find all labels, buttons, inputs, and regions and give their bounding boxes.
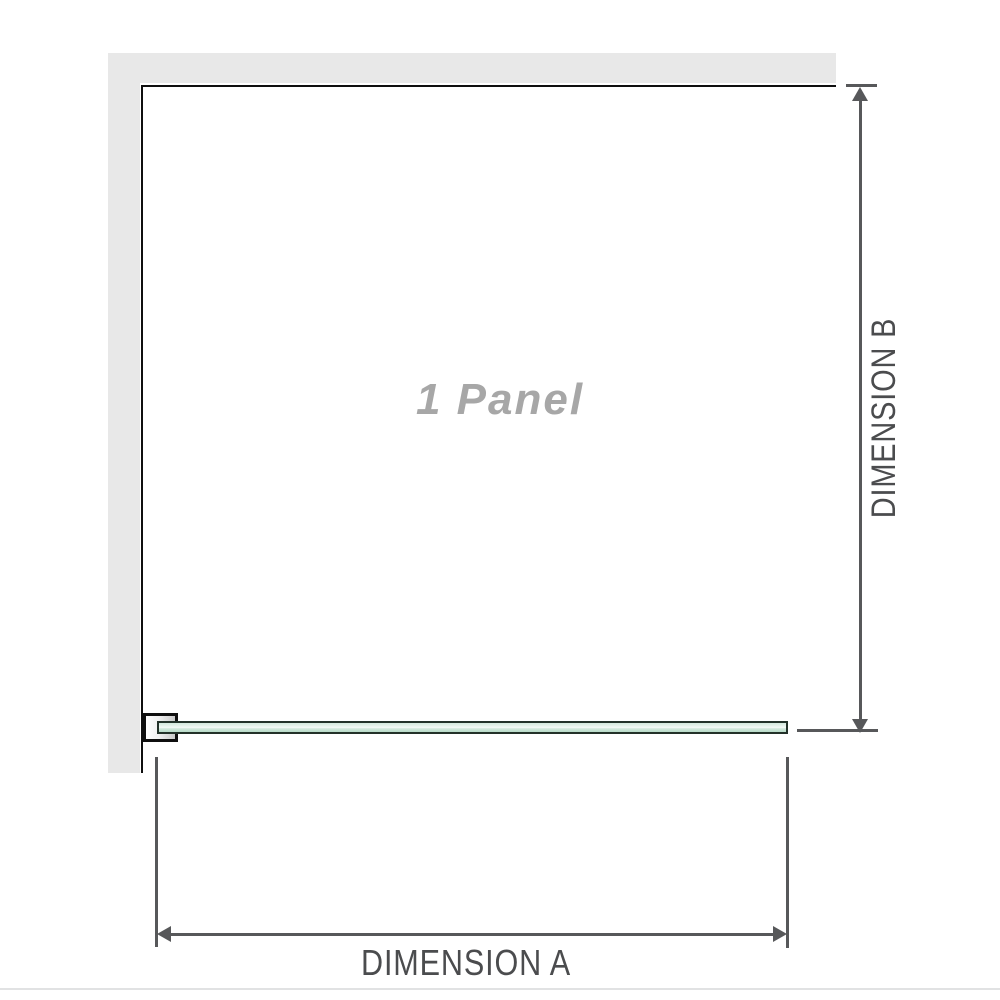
bottom-separator [0,988,1000,990]
arrow-left-icon [157,926,171,942]
wall-segment-left [108,53,140,773]
panel-label: 1 Panel [300,372,700,428]
dimension-a-left-extension [155,757,158,947]
arrow-up-icon [852,87,868,101]
arrow-down-icon [852,719,868,733]
dimension-b-label: DIMENSION B [866,248,902,588]
panel-outline-top-edge [141,85,836,87]
arrow-right-icon [773,926,787,942]
panel-outline-left-edge [141,85,143,773]
diagram-canvas: 1 Panel DIMENSION B DIMENSION A [0,0,1000,1000]
dimension-a-line [169,933,775,936]
dimension-b-line [859,98,862,722]
dimension-a-right-extension [786,757,789,948]
wall-segment-top [108,53,836,83]
dimension-a-label: DIMENSION A [296,945,636,981]
glass-panel-bar [157,721,788,734]
